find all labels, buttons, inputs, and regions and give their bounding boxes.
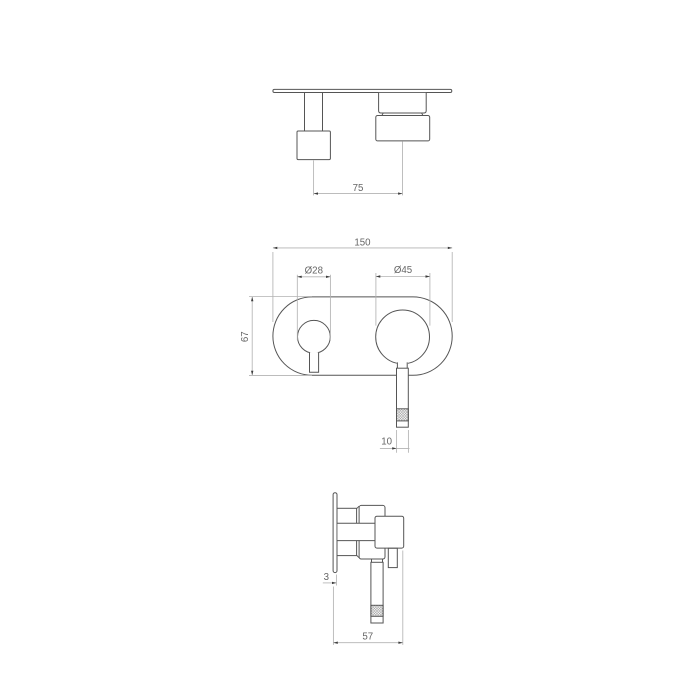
svg-text:150: 150 [354, 237, 371, 248]
svg-text:67: 67 [240, 331, 251, 342]
svg-text:10: 10 [381, 437, 392, 448]
svg-text:3: 3 [324, 572, 329, 583]
svg-text:57: 57 [362, 632, 373, 643]
svg-text:75: 75 [353, 183, 364, 194]
svg-text:Ø45: Ø45 [394, 265, 412, 276]
svg-text:Ø28: Ø28 [305, 266, 323, 277]
